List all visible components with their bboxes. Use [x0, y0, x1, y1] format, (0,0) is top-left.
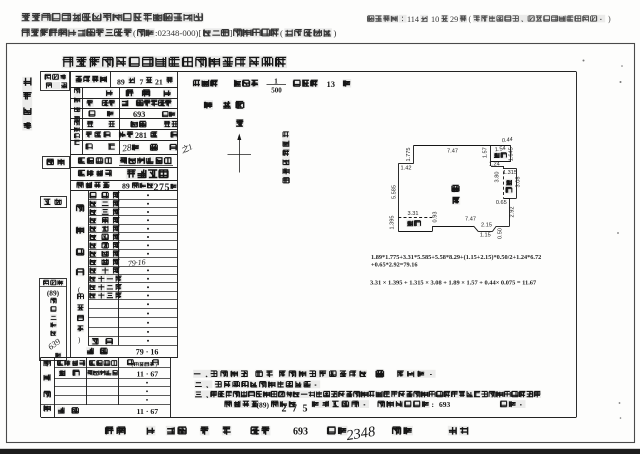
svg-text:89: 89	[117, 77, 125, 86]
svg-text:7: 7	[140, 77, 144, 86]
svg-text:114: 114	[407, 15, 419, 24]
svg-text:79·16: 79·16	[128, 257, 146, 268]
svg-text:(: (	[469, 15, 472, 24]
svg-text:10: 10	[431, 15, 439, 24]
svg-text:1.15: 1.15	[480, 233, 491, 239]
svg-text:1.89*1.775+3.31*5.585+5.58*8.2: 1.89*1.775+3.31*5.585+5.58*8.29+(1.15+2.…	[371, 254, 541, 261]
svg-text:): )	[334, 28, 337, 38]
svg-text::: :	[432, 400, 435, 409]
svg-text:693: 693	[293, 427, 308, 438]
svg-text:1.775: 1.775	[406, 148, 412, 162]
svg-text:1.24: 1.24	[489, 162, 500, 168]
svg-text:]: ]	[230, 28, 233, 38]
svg-text:2.15: 2.15	[481, 223, 492, 229]
svg-text:3.80: 3.80	[494, 172, 500, 183]
svg-text:693: 693	[133, 110, 145, 119]
svg-text:28: 28	[122, 143, 133, 154]
svg-text:1.42: 1.42	[401, 165, 412, 171]
svg-text:3.31 × 1.395 + 1.315 × 3.08 +: 3.31 × 1.395 + 1.315 × 3.08 + 1.89 × 1.5…	[370, 280, 537, 287]
svg-text:11 · 67: 11 · 67	[137, 407, 159, 416]
svg-text:13: 13	[327, 79, 336, 89]
svg-text:693: 693	[439, 400, 451, 409]
svg-text:0.50: 0.50	[498, 228, 504, 239]
svg-text:21: 21	[155, 77, 163, 86]
svg-text:281: 281	[135, 131, 147, 140]
svg-text:1.645: 1.645	[509, 147, 515, 161]
svg-text:1.395: 1.395	[389, 216, 395, 230]
svg-text:7.47: 7.47	[447, 149, 458, 155]
svg-text:3.08: 3.08	[516, 177, 522, 188]
svg-text:2 7 5: 2 7 5	[282, 404, 310, 415]
svg-text:500: 500	[271, 86, 282, 94]
svg-text:5.585: 5.585	[392, 185, 398, 199]
svg-text:89: 89	[122, 182, 130, 191]
svg-text:(: (	[132, 362, 134, 369]
svg-text:275: 275	[154, 183, 171, 194]
svg-text:3.31: 3.31	[408, 211, 419, 217]
svg-text:2.92: 2.92	[510, 207, 516, 218]
svg-text:0.93: 0.93	[433, 212, 439, 223]
svg-text:1.315: 1.315	[503, 170, 517, 176]
svg-text:7.47: 7.47	[465, 217, 476, 223]
svg-text::02348-000)[: :02348-000)[	[155, 28, 201, 38]
svg-text:(: (	[280, 28, 283, 38]
svg-text:1.57: 1.57	[482, 147, 488, 158]
svg-text:79 · 16: 79 · 16	[136, 347, 159, 356]
svg-text:): )	[155, 362, 157, 369]
svg-text:(: (	[133, 28, 136, 38]
svg-text:29: 29	[450, 15, 458, 24]
svg-text:0.65: 0.65	[496, 200, 507, 206]
svg-text:+0.65*2.92=79.16: +0.65*2.92=79.16	[371, 262, 418, 269]
svg-text:): )	[608, 15, 611, 24]
svg-text:11 · 67: 11 · 67	[137, 369, 159, 378]
svg-text:(89): (89)	[257, 400, 270, 409]
svg-text:(89): (89)	[47, 289, 60, 298]
